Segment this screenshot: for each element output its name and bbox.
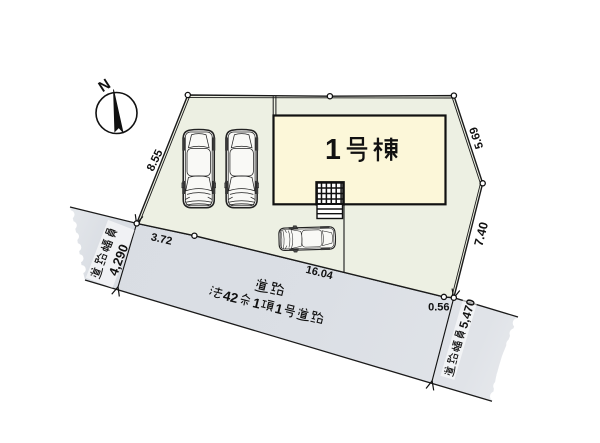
svg-text:0.56: 0.56 (428, 302, 449, 314)
svg-text:1: 1 (325, 134, 341, 166)
